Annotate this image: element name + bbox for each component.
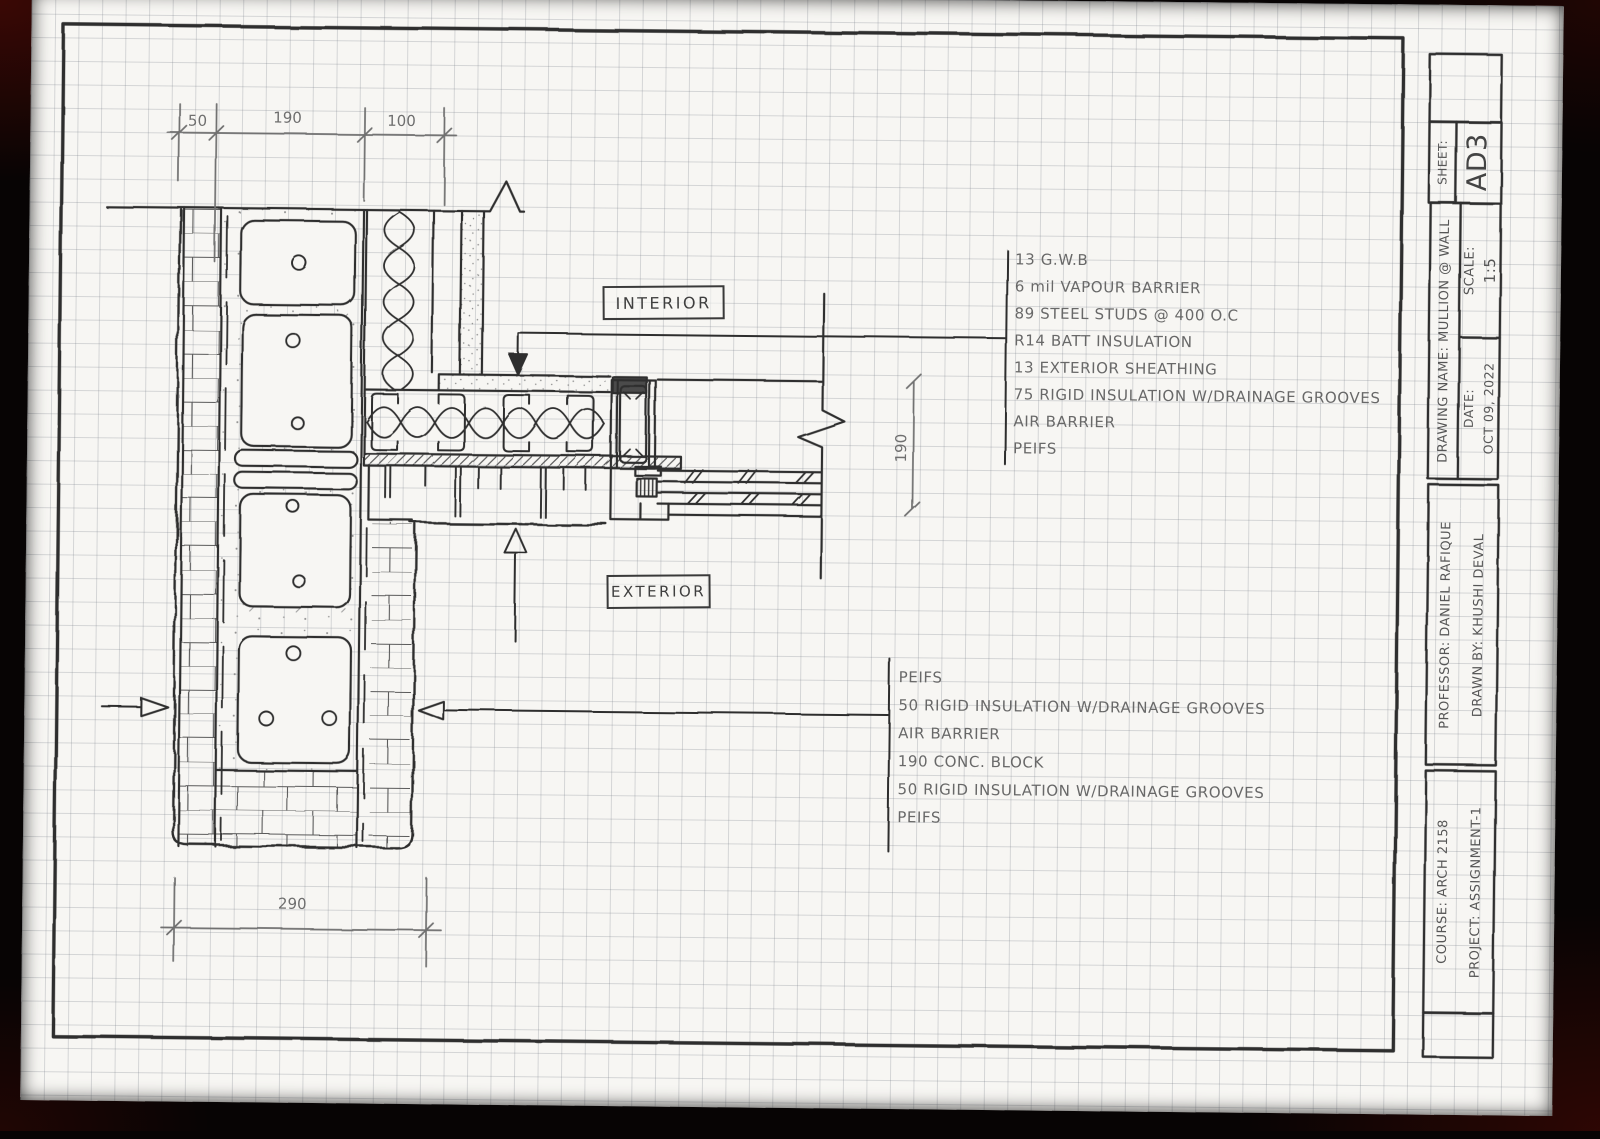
exterior-label-text: EXTERIOR xyxy=(611,582,706,601)
glass-ticks xyxy=(685,470,814,505)
batt-insulation-horizontal xyxy=(366,407,604,439)
drawn-by-name: DRAWN BY: KHUSHI DEVAL xyxy=(1461,485,1497,765)
title-cell-empty-bottom xyxy=(1423,1013,1493,1058)
scale-label: SCALE: xyxy=(1459,203,1480,337)
dim-top-left: 50 xyxy=(188,112,207,130)
wall-top-break-line xyxy=(107,177,524,211)
annotation-line: AIR BARRIER xyxy=(898,719,1265,751)
date-label: DATE: xyxy=(1458,337,1479,479)
annotation-line: AIR BARRIER xyxy=(1013,408,1380,439)
grid-paper: 50 190 100 290 190 13 G.W.B 6 mil VAPOUR… xyxy=(20,0,1564,1116)
annotation-line: 75 RIGID INSULATION W/DRAINAGE GROOVES xyxy=(1014,381,1381,412)
block-cell xyxy=(241,220,356,305)
drawing-linework: 50 190 100 290 190 xyxy=(0,0,1600,1139)
project-name: PROJECT: ASSIGNMENT-1 xyxy=(1458,771,1494,1013)
block-cell xyxy=(238,636,351,763)
steel-studs xyxy=(371,394,594,452)
annotation-line: 13 G.W.B xyxy=(1015,246,1382,277)
drainage-grooves xyxy=(385,466,586,518)
course-cell: COURSE: ARCH 2158 PROJECT: ASSIGNMENT-1 xyxy=(1425,771,1494,1014)
annotation-line: R14 BATT INSULATION xyxy=(1014,327,1381,358)
annotation-line: 89 STEEL STUDS @ 400 O.C xyxy=(1014,300,1381,331)
glazing-bands xyxy=(658,470,821,506)
interior-label-text: INTERIOR xyxy=(615,293,711,313)
block-cell xyxy=(239,494,350,607)
course-name: COURSE: ARCH 2158 xyxy=(1425,771,1461,1013)
photo-background: 50 190 100 290 190 13 G.W.B 6 mil VAPOUR… xyxy=(0,0,1600,1131)
interior-label: INTERIOR xyxy=(602,285,724,320)
sheet-number: AD3 xyxy=(1454,122,1502,203)
gwb-strip-vertical xyxy=(460,211,484,375)
dim-top-right: 100 xyxy=(387,112,416,130)
sheet-label-cell: SHEET: xyxy=(1429,122,1457,203)
lower-assembly-annotation: PEIFS 50 RIGID INSULATION W/DRAINAGE GRO… xyxy=(897,663,1266,835)
dim-top-mid: 190 xyxy=(273,109,302,127)
air-barrier-east xyxy=(363,528,366,842)
batt-column-edges xyxy=(365,210,434,391)
sheet-value-cell: AD3 xyxy=(1454,122,1502,203)
exterior-leader xyxy=(515,553,516,641)
annotation-line: 50 RIGID INSULATION W/DRAINAGE GROOVES xyxy=(898,691,1265,723)
dim-right: 190 xyxy=(892,434,910,463)
annotation-line: PEIFS xyxy=(899,663,1266,695)
block-bottom-courses xyxy=(215,770,358,847)
exterior-arrow xyxy=(505,529,527,553)
date-cell: DATE: OCT 09, 2022 xyxy=(1458,337,1499,479)
upper-assembly-annotation: 13 G.W.B 6 mil VAPOUR BARRIER 89 STEEL S… xyxy=(1013,246,1382,466)
annotation-line: 6 mil VAPOUR BARRIER xyxy=(1015,273,1382,304)
title-cell-empty-top xyxy=(1430,55,1503,123)
bottom-dimension-lines xyxy=(161,875,442,966)
glazing-head-line xyxy=(658,380,822,382)
east-rigid-insulation-hatch xyxy=(369,522,412,848)
anchor-shim-stripes xyxy=(641,478,653,496)
mullion-corner-ticks xyxy=(623,392,644,456)
drawing-name: DRAWING NAME: MULLION @ WALL xyxy=(1428,203,1461,479)
interior-arrow xyxy=(509,354,527,374)
date-value: OCT 09, 2022 xyxy=(1478,337,1499,479)
annotation-line: PEIFS xyxy=(1013,435,1380,466)
professor-name: PROFESSOR: DANIEL RAFIQUE xyxy=(1428,485,1464,765)
dim-bottom: 290 xyxy=(278,895,307,913)
drawing-sheet: 50 190 100 290 190 13 G.W.B 6 mil VAPOUR… xyxy=(0,0,1600,1139)
block-web xyxy=(235,450,357,467)
annotation-line: PEIFS xyxy=(897,803,1264,835)
block-web xyxy=(235,472,357,489)
drawing-name-cell: DRAWING NAME: MULLION @ WALL xyxy=(1428,203,1461,479)
ink-linework xyxy=(53,24,1504,1057)
annotation-line: 50 RIGID INSULATION W/DRAINAGE GROOVES xyxy=(897,775,1264,807)
wall-arrow-left xyxy=(141,698,168,716)
annotation-line: 13 EXTERIOR SHEATHING xyxy=(1014,354,1381,385)
mullion-box xyxy=(620,386,647,462)
scale-cell: SCALE: 1:5 xyxy=(1459,203,1500,337)
sheet-label: SHEET: xyxy=(1429,122,1457,203)
gwb-strip-horizontal xyxy=(439,374,610,392)
batt-insulation-vertical xyxy=(383,212,415,392)
scale-value: 1:5 xyxy=(1479,203,1500,337)
exterior-label: EXTERIOR xyxy=(606,574,710,609)
anchor-shims xyxy=(637,478,657,496)
peifs-assembly-bottom xyxy=(410,522,606,524)
wall-arrow-right xyxy=(418,701,443,719)
professor-cell: PROFESSOR: DANIEL RAFIQUE DRAWN BY: KHUS… xyxy=(1428,485,1497,766)
annotation-line: 190 CONC. BLOCK xyxy=(898,747,1265,779)
upper-annotation-leader xyxy=(517,245,1007,464)
block-bottom-band-line xyxy=(216,770,358,771)
